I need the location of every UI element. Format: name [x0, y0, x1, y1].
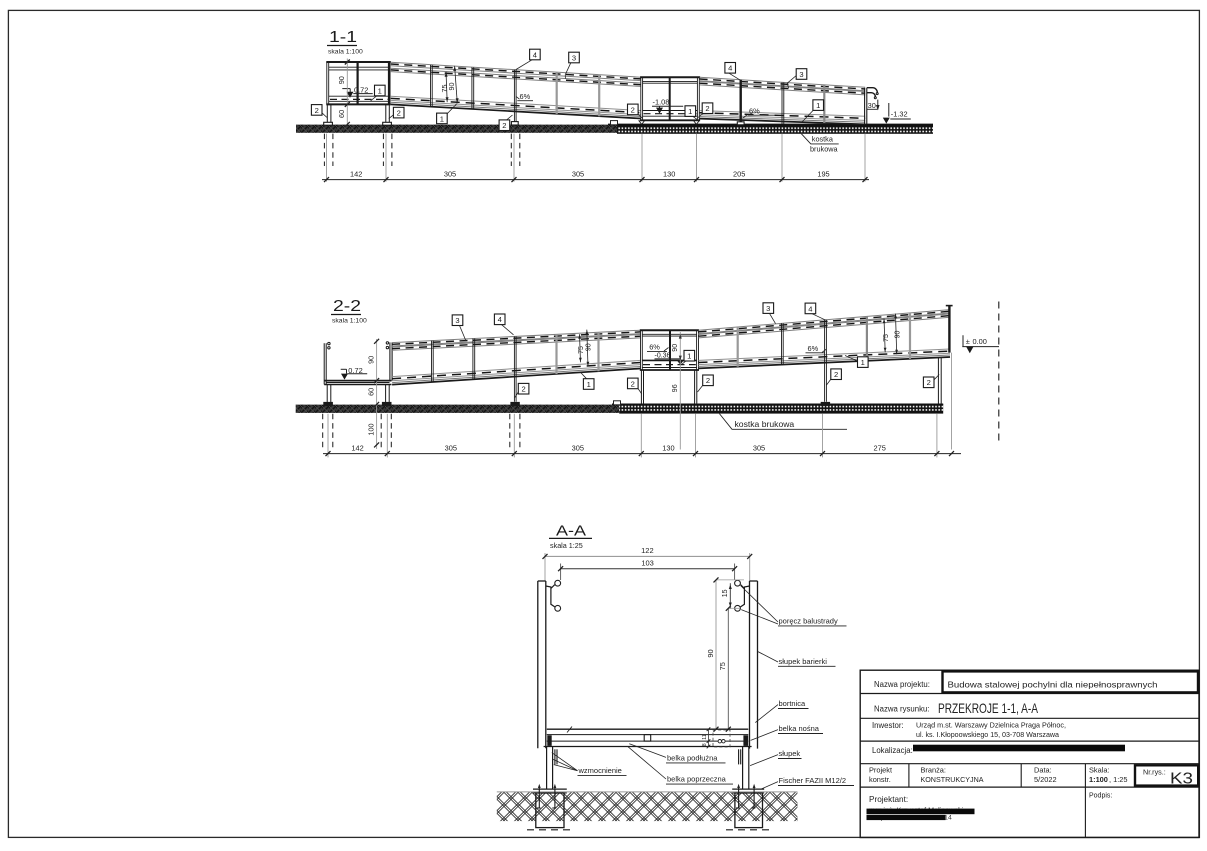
- svg-text:6%: 6%: [520, 92, 531, 101]
- svg-text:Nazwa projektu:: Nazwa projektu:: [874, 680, 930, 689]
- svg-text:Branża:: Branża:: [921, 765, 946, 774]
- svg-text:PRZEKROJE 1-1, A-A: PRZEKROJE 1-1, A-A: [938, 701, 1039, 716]
- svg-text:Urząd m.st. Warszawy Dzielnica: Urząd m.st. Warszawy Dzielnica Praga Pół…: [916, 721, 1066, 730]
- svg-text:90: 90: [337, 76, 346, 84]
- svg-text:skala 1:100: skala 1:100: [328, 49, 363, 56]
- svg-text:305: 305: [572, 444, 584, 453]
- svg-text:, 1:25: , 1:25: [1109, 775, 1128, 784]
- svg-text:2: 2: [706, 376, 710, 385]
- svg-text:4: 4: [728, 64, 732, 73]
- svg-text:2: 2: [502, 121, 506, 130]
- svg-text:130: 130: [663, 170, 675, 179]
- svg-text:Nazwa rysunku:: Nazwa rysunku:: [874, 705, 929, 714]
- svg-text:2: 2: [397, 109, 401, 118]
- svg-text:-1.08: -1.08: [653, 98, 670, 107]
- svg-text:2: 2: [521, 385, 525, 394]
- svg-text:Skala:: Skala:: [1089, 765, 1110, 774]
- svg-text:belka nośna: belka nośna: [779, 724, 820, 733]
- svg-text:3: 3: [572, 53, 576, 62]
- svg-text:275: 275: [874, 444, 886, 453]
- svg-text:11: 11: [702, 734, 708, 739]
- svg-text:bortnica: bortnica: [779, 699, 807, 708]
- svg-text:90: 90: [366, 356, 375, 364]
- svg-text:1-1: 1-1: [329, 29, 357, 46]
- svg-text:Inwestor:: Inwestor:: [872, 721, 904, 730]
- svg-text:8: 8: [702, 743, 708, 746]
- svg-text:2-2: 2-2: [333, 298, 361, 315]
- svg-text:2: 2: [631, 105, 635, 114]
- svg-text:2: 2: [927, 378, 931, 387]
- svg-text:6%: 6%: [808, 344, 819, 353]
- svg-text:90: 90: [585, 343, 592, 351]
- svg-text:brukowa: brukowa: [810, 145, 839, 154]
- svg-text:słupek: słupek: [779, 749, 801, 758]
- svg-text:K3: K3: [1170, 771, 1193, 788]
- svg-text:60: 60: [366, 388, 375, 396]
- svg-text:Projekt: Projekt: [869, 765, 892, 774]
- svg-text:-0.36: -0.36: [655, 352, 671, 359]
- svg-text:90: 90: [895, 331, 902, 339]
- svg-text:100: 100: [366, 423, 375, 435]
- svg-text:Nr.rys.:: Nr.rys.:: [1143, 767, 1166, 776]
- svg-text:2: 2: [631, 379, 635, 388]
- svg-text:305: 305: [753, 444, 765, 453]
- svg-text:konstr.: konstr.: [869, 775, 891, 784]
- svg-text:90: 90: [706, 649, 715, 657]
- svg-text:słupek barierki: słupek barierki: [779, 657, 828, 666]
- svg-text:-1.32: -1.32: [891, 109, 908, 118]
- svg-text:195: 195: [817, 170, 829, 179]
- svg-text:1: 1: [378, 86, 382, 95]
- svg-text:1: 1: [688, 107, 692, 116]
- svg-text:wzmocnienie: wzmocnienie: [578, 766, 622, 775]
- svg-text:6%: 6%: [649, 342, 660, 351]
- svg-text:90: 90: [672, 344, 679, 352]
- svg-text:60: 60: [337, 110, 346, 118]
- svg-text:305: 305: [444, 170, 456, 179]
- svg-text:Lokalizacja:: Lokalizacja:: [872, 746, 913, 755]
- svg-text:142: 142: [350, 170, 362, 179]
- svg-text:4: 4: [498, 315, 502, 324]
- svg-text:0.00: 0.00: [973, 337, 987, 346]
- svg-text:205: 205: [733, 170, 745, 179]
- svg-text:3: 3: [455, 316, 459, 325]
- svg-text:skala 1:100: skala 1:100: [332, 318, 367, 325]
- svg-text:75: 75: [883, 334, 890, 342]
- svg-text:±: ±: [966, 337, 970, 346]
- svg-text:Projektant:: Projektant:: [869, 795, 908, 804]
- svg-text:KONSTRUKCYJNA: KONSTRUKCYJNA: [921, 775, 984, 784]
- svg-text:75: 75: [578, 346, 585, 354]
- svg-text:A-A: A-A: [556, 524, 586, 540]
- svg-text:1: 1: [687, 352, 691, 361]
- svg-text:Budowa stalowej pochylni dla n: Budowa stalowej pochylni dla niepełnospr…: [948, 679, 1158, 689]
- svg-text:30: 30: [868, 101, 876, 110]
- svg-text:kostka brukowa: kostka brukowa: [735, 419, 795, 429]
- svg-text:2: 2: [834, 370, 838, 379]
- svg-text:4: 4: [533, 50, 537, 59]
- svg-text:0.72: 0.72: [354, 85, 368, 94]
- svg-text:Data:: Data:: [1034, 765, 1052, 774]
- svg-text:2: 2: [315, 106, 319, 115]
- svg-text:1:100: 1:100: [1089, 775, 1108, 784]
- svg-text:90: 90: [447, 83, 456, 91]
- svg-text:skala 1:25: skala 1:25: [550, 541, 583, 550]
- svg-text:poręcz balustrady: poręcz balustrady: [779, 616, 838, 625]
- svg-text:4: 4: [808, 304, 812, 313]
- svg-text:1: 1: [587, 380, 591, 389]
- svg-text:2: 2: [705, 104, 709, 113]
- svg-text:122: 122: [641, 546, 654, 555]
- svg-text:96: 96: [672, 384, 679, 392]
- svg-text:Fischer FAZII M12/2: Fischer FAZII M12/2: [779, 776, 847, 785]
- svg-text:305: 305: [445, 444, 457, 453]
- svg-text:1: 1: [816, 101, 820, 110]
- svg-text:belka podłużna: belka podłużna: [667, 753, 718, 762]
- svg-text:75: 75: [718, 662, 727, 670]
- svg-text:kostka: kostka: [812, 135, 834, 144]
- svg-text:Podpis:: Podpis:: [1089, 793, 1112, 800]
- svg-text:1: 1: [440, 114, 444, 123]
- svg-text:305: 305: [572, 170, 584, 179]
- svg-text:103: 103: [641, 558, 654, 567]
- svg-text:6%: 6%: [749, 107, 760, 116]
- svg-text:belka poprzeczna: belka poprzeczna: [667, 775, 727, 784]
- svg-text:3: 3: [766, 304, 770, 313]
- svg-text:5/2022: 5/2022: [1034, 775, 1057, 784]
- svg-text:1: 1: [861, 358, 865, 367]
- svg-text:ul. ks. I.Kłopoowskiego 15, 03: ul. ks. I.Kłopoowskiego 15, 03-708 Warsz…: [916, 730, 1060, 739]
- svg-text:3: 3: [799, 70, 803, 79]
- svg-text:142: 142: [351, 444, 363, 453]
- svg-text:130: 130: [662, 444, 674, 453]
- svg-text:15: 15: [722, 589, 729, 597]
